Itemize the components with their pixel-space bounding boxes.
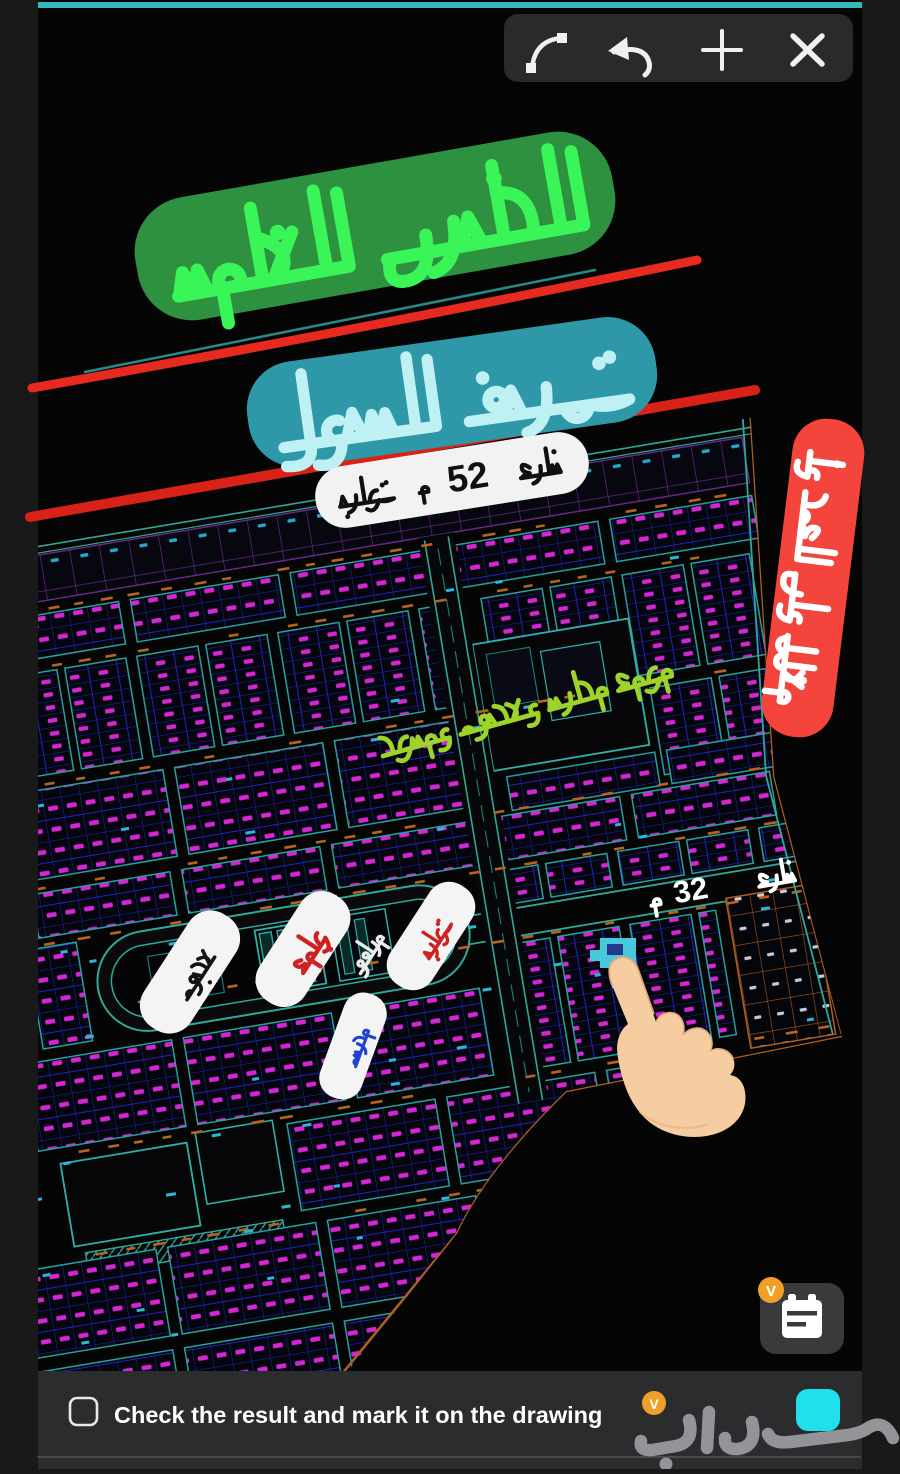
svg-text:52: 52 — [444, 454, 491, 501]
svg-text:V: V — [766, 1283, 776, 1300]
svg-text:32: 32 — [670, 870, 710, 910]
svg-text:V: V — [649, 1396, 659, 1412]
svg-text:Check the result and mark it o: Check the result and mark it on the draw… — [114, 1402, 602, 1428]
